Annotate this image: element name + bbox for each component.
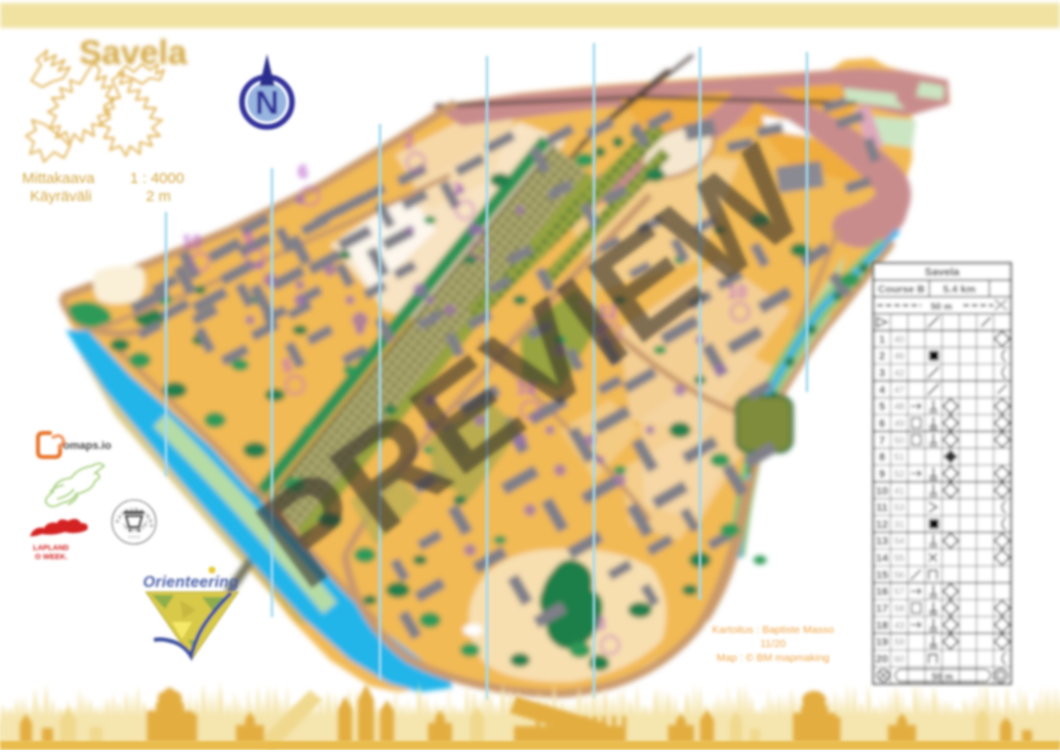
svg-text:46: 46 (894, 351, 904, 361)
svg-text:50 m: 50 m (932, 671, 954, 682)
svg-text:15: 15 (876, 569, 888, 581)
svg-text:13: 13 (876, 536, 888, 548)
svg-text:54: 54 (894, 536, 904, 546)
svg-text:2: 2 (879, 351, 885, 363)
svg-text:7: 7 (879, 435, 885, 447)
svg-text:60: 60 (894, 654, 904, 664)
svg-text:40: 40 (894, 334, 904, 344)
svg-text:4: 4 (879, 384, 886, 396)
svg-text:8: 8 (468, 220, 478, 240)
svg-text:50: 50 (894, 435, 904, 445)
svg-text:49: 49 (894, 419, 904, 429)
svg-text:52: 52 (894, 469, 904, 479)
svg-text:LAPLAND: LAPLAND (33, 543, 69, 552)
svg-text:41: 41 (894, 486, 904, 496)
svg-text:2: 2 (404, 132, 414, 152)
svg-text:20: 20 (876, 654, 888, 666)
svg-text:Course B: Course B (878, 284, 925, 296)
svg-text:14: 14 (876, 553, 889, 565)
svg-text:O WEEK.: O WEEK. (35, 552, 68, 561)
svg-text:Savela: Savela (79, 34, 188, 72)
svg-text:56: 56 (894, 570, 904, 580)
svg-text:17: 17 (876, 603, 888, 615)
svg-text:18: 18 (876, 620, 888, 632)
svg-text:50 m: 50 m (931, 301, 953, 312)
svg-text:47: 47 (894, 385, 904, 395)
svg-text:19: 19 (876, 637, 888, 649)
svg-text:1: 1 (879, 334, 885, 346)
svg-text:12: 12 (876, 519, 888, 531)
svg-text:3: 3 (596, 614, 606, 634)
svg-text:Savela: Savela (925, 267, 961, 279)
svg-text:9: 9 (243, 228, 253, 248)
svg-text:* * * *: * * * * (129, 535, 140, 540)
svg-text:1 : 4000: 1 : 4000 (130, 170, 184, 187)
svg-text:10: 10 (182, 232, 202, 252)
svg-text:53: 53 (894, 503, 904, 513)
svg-text:48: 48 (894, 402, 904, 412)
svg-text:N: N (255, 84, 279, 121)
svg-text:5.4 km: 5.4 km (943, 284, 976, 296)
svg-text:6: 6 (298, 162, 308, 182)
svg-text:Mittakaava: Mittakaava (22, 170, 95, 187)
svg-text:2 m: 2 m (146, 188, 171, 205)
svg-text:Map : © BM mapmaking: Map : © BM mapmaking (717, 652, 830, 664)
svg-text:9: 9 (879, 468, 885, 480)
svg-text:55: 55 (894, 553, 904, 563)
svg-text:10: 10 (876, 485, 888, 497)
svg-text:3: 3 (879, 368, 885, 380)
svg-text:42: 42 (894, 368, 904, 378)
svg-text:16: 16 (876, 586, 888, 598)
svg-text:6: 6 (879, 418, 885, 430)
svg-text:59: 59 (894, 637, 904, 647)
svg-text:Käyräväli: Käyräväli (30, 188, 92, 205)
svg-text:7: 7 (452, 180, 462, 200)
svg-text:11/20: 11/20 (760, 638, 786, 650)
svg-text:5: 5 (879, 401, 885, 413)
svg-text:Kartoitus : Baptiste Masso: Kartoitus : Baptiste Masso (712, 624, 834, 636)
svg-text:58: 58 (894, 604, 904, 614)
svg-text:Orienteering: Orienteering (143, 574, 239, 591)
svg-text:11: 11 (876, 502, 888, 514)
svg-text:5: 5 (282, 356, 292, 376)
svg-text:43: 43 (894, 620, 904, 630)
svg-text:omaps.io: omaps.io (63, 440, 112, 452)
svg-text:31: 31 (894, 519, 904, 529)
svg-text:51: 51 (894, 452, 904, 462)
svg-text:57: 57 (894, 587, 904, 597)
svg-text:8: 8 (879, 452, 885, 464)
